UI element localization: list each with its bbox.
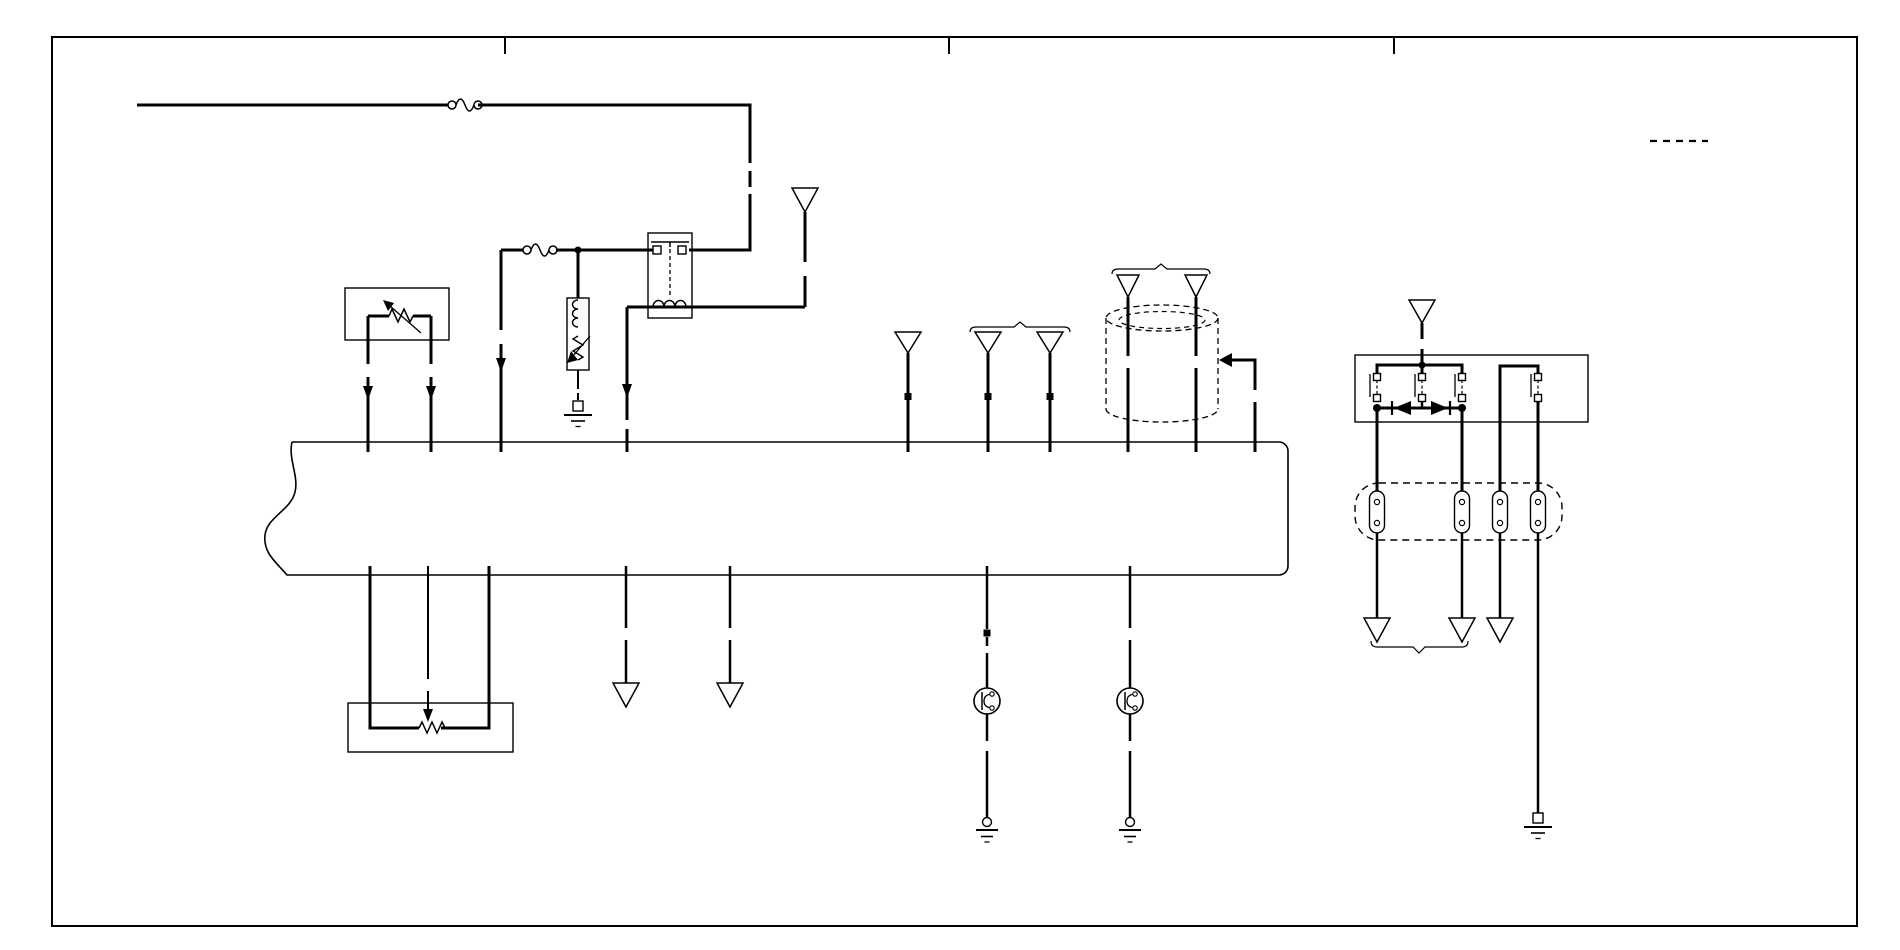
driver-device-2 xyxy=(1117,688,1143,714)
splice-marker-a xyxy=(905,393,912,400)
solenoid-arrow-shaft xyxy=(573,336,590,356)
relay-2-contact-1 xyxy=(1370,374,1381,402)
splice-marker-c xyxy=(1047,393,1054,400)
junction-dot-2 xyxy=(1419,362,1426,369)
connector-arrow-7 xyxy=(1409,300,1435,323)
connector-arrow-2 xyxy=(895,332,921,353)
connector-arrow-11 xyxy=(613,683,639,707)
flow-arrow-3 xyxy=(363,386,373,400)
splice-marker-d xyxy=(984,630,991,637)
connector-arrow-12 xyxy=(717,683,743,707)
sensor-arrow-shaft xyxy=(390,306,421,333)
strip-terminal-4 xyxy=(1531,491,1546,533)
strip-terminal-3 xyxy=(1493,491,1508,533)
connector-arrow-1 xyxy=(792,188,818,212)
connector-arrow-4 xyxy=(1037,332,1063,353)
diode-left xyxy=(1394,401,1411,415)
flow-arrow-4 xyxy=(426,386,436,400)
ground-symbol-3 xyxy=(1119,818,1141,843)
strip-terminal-1 xyxy=(1370,491,1385,533)
strip-terminal-2 xyxy=(1455,491,1470,533)
pot-wire-right xyxy=(441,566,489,728)
tap-wire-1 xyxy=(1231,360,1255,390)
ground-symbol-2 xyxy=(976,818,998,843)
relay-2-contact-2 xyxy=(1415,374,1426,402)
feed-wire-2 xyxy=(478,105,750,163)
tap-arrow-head xyxy=(1219,353,1232,367)
flow-arrow-1 xyxy=(496,358,506,372)
pair-bracket-2 xyxy=(1112,264,1210,274)
main-harness-bus xyxy=(265,442,1288,575)
connector-arrow-9 xyxy=(1449,618,1475,642)
fuse-2 xyxy=(523,244,557,256)
wiring-diagram-page xyxy=(0,0,1900,950)
splice-marker-b xyxy=(985,393,992,400)
relay-2-right-bus xyxy=(1500,366,1538,492)
sensor-box xyxy=(345,288,449,340)
diode-right xyxy=(1431,401,1448,415)
cylinder-bottom-rim xyxy=(1106,409,1218,422)
connector-arrow-6 xyxy=(1185,275,1207,297)
pair-bracket-1 xyxy=(970,322,1070,332)
ground-symbol-1 xyxy=(564,401,592,427)
connector-arrow-10 xyxy=(1487,618,1513,642)
cylinder-top-rim xyxy=(1106,305,1218,331)
relay-2-contact-4 xyxy=(1531,374,1542,402)
pair-underbrace xyxy=(1371,641,1468,653)
diagram-canvas xyxy=(0,0,1900,950)
connector-arrow-3 xyxy=(975,332,1001,353)
solenoid-coil xyxy=(573,300,579,327)
relay-1-pin-left xyxy=(653,246,661,254)
connector-arrow-8 xyxy=(1364,618,1390,642)
flow-arrow-2 xyxy=(622,384,632,398)
driver-device-1 xyxy=(974,688,1000,714)
pot-wiper-arrow xyxy=(423,709,433,722)
feed-wire-3 xyxy=(689,194,750,250)
fuse-1 xyxy=(448,99,482,111)
cylinder-top-rim-inner xyxy=(1119,312,1205,329)
relay-2-contact-3 xyxy=(1455,374,1466,402)
connector-arrow-5 xyxy=(1117,275,1139,297)
pot-wire-left xyxy=(370,566,419,728)
outer-border xyxy=(52,37,1857,926)
ground-symbol-4 xyxy=(1524,813,1552,839)
relay-1-pin-right xyxy=(678,246,686,254)
